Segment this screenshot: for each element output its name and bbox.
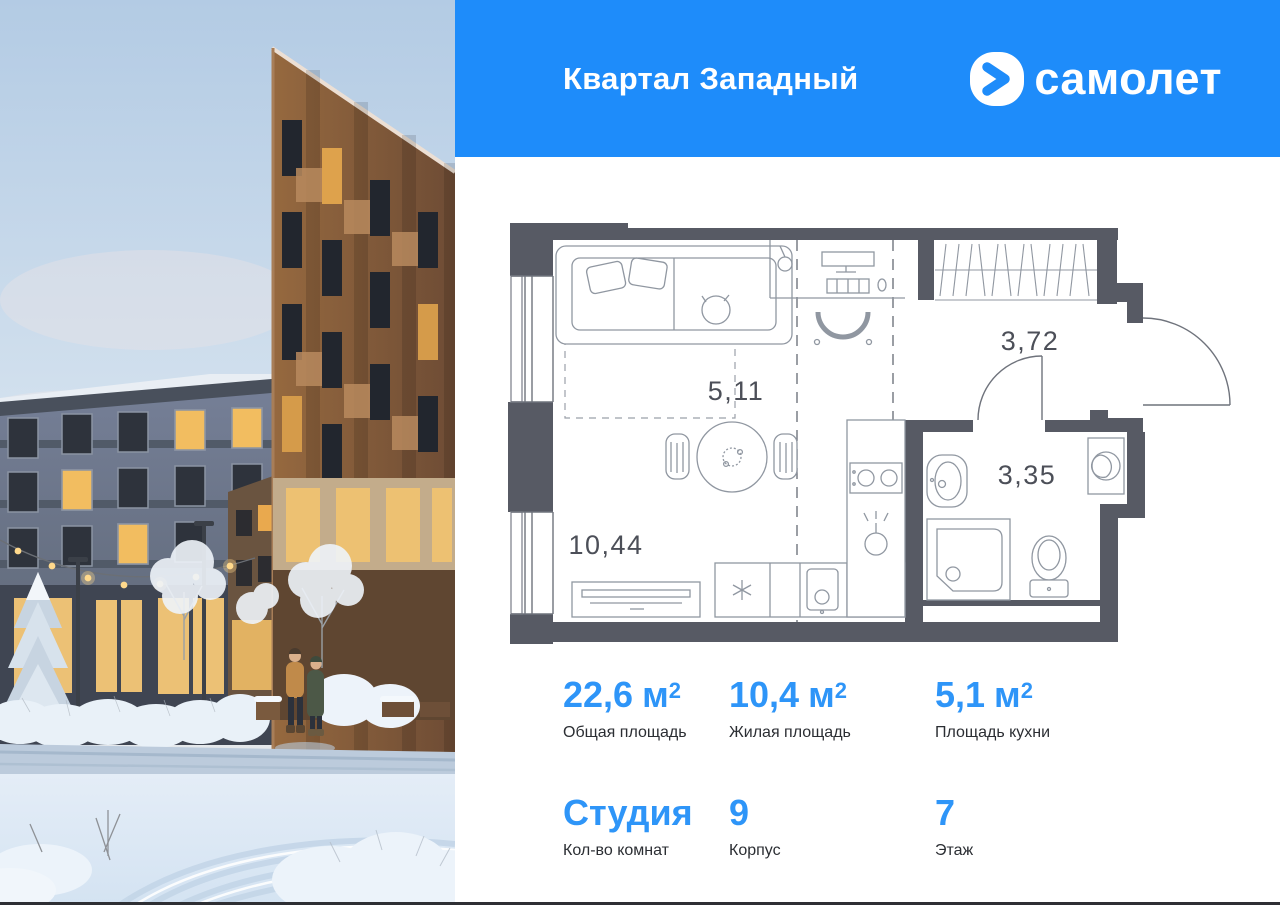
stat-kitchen-area: 5,1м2 Площадь кухни (935, 676, 1155, 742)
stats-row-details: Студия Кол-во комнат 9 Корпус 7 Этаж (563, 794, 1223, 860)
cooktop-icon (847, 420, 905, 617)
stat-label: Этаж (935, 841, 1155, 860)
area-label-bathroom: 3,35 (998, 460, 1057, 490)
stat-building: 9 Корпус (729, 794, 935, 860)
wardrobe-icon (935, 244, 1097, 300)
bathroom-sink-icon (927, 455, 967, 507)
apartment-stats: 22,6м2 Общая площадь 10,4м2 Жилая площад… (563, 676, 1223, 860)
header: Квартал Западный самолет (455, 0, 1280, 157)
samolet-logo-icon (970, 52, 1024, 106)
snow-field (0, 774, 455, 905)
building-copper (272, 48, 455, 770)
apartment-card: Квартал Западный самолет (0, 0, 1280, 905)
stat-label: Общая площадь (563, 723, 729, 742)
kitchen-sink-icon (807, 569, 838, 614)
sofa-icon (556, 246, 792, 344)
office-chair-icon (815, 312, 872, 345)
area-label-hall: 3,72 (1001, 326, 1060, 356)
window-icon (511, 276, 553, 402)
brand-logo: самолет (970, 52, 1222, 106)
stat-living-area: 10,4м2 Жилая площадь (729, 676, 935, 742)
brand-name: самолет (1034, 56, 1222, 101)
stat-label: Кол-во комнат (563, 841, 729, 860)
dining-table-icon (666, 422, 797, 492)
bathroom-door-icon (978, 356, 1042, 420)
entrance-door-icon (1143, 318, 1230, 405)
area-label-kitchen: 5,11 (708, 376, 765, 406)
stat-total-area: 22,6м2 Общая площадь (563, 676, 729, 742)
shower-icon (927, 519, 1010, 600)
stat-label: Корпус (729, 841, 935, 860)
toilet-icon (1030, 536, 1068, 597)
tv-stand-icon (572, 582, 700, 617)
project-photo (0, 0, 455, 905)
stat-floor: 7 Этаж (935, 794, 1155, 860)
washing-machine-icon (1088, 438, 1124, 494)
area-label-living: 10,44 (568, 530, 643, 560)
stats-row-areas: 22,6м2 Общая площадь 10,4м2 Жилая площад… (563, 676, 1223, 742)
stat-rooms: Студия Кол-во комнат (563, 794, 729, 860)
window-icon (511, 512, 553, 614)
project-title: Квартал Западный (563, 61, 858, 97)
stat-label: Жилая площадь (729, 723, 935, 742)
floor-plan: 10,44 5,11 3,72 3,35 (490, 222, 1240, 652)
stat-label: Площадь кухни (935, 723, 1155, 742)
